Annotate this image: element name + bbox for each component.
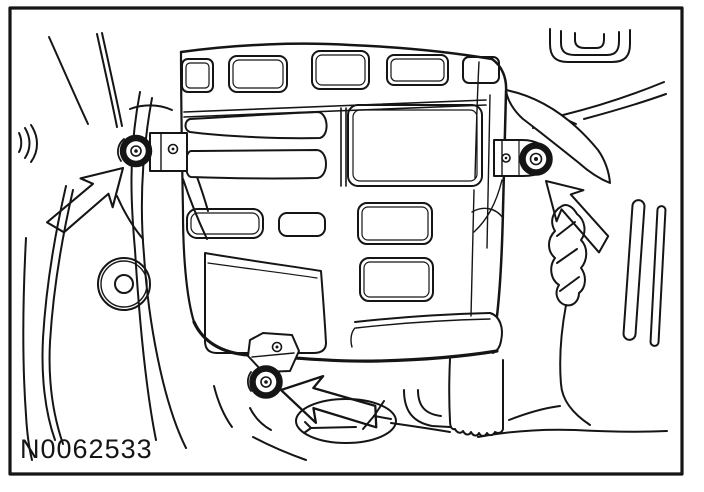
right-mounting-tab	[494, 140, 550, 176]
bracket-bottom-rib	[351, 313, 502, 353]
braided-strap	[509, 205, 590, 425]
wiring-boot	[449, 359, 503, 436]
left-mounting-tab	[118, 133, 187, 171]
right-mounting-bolt	[523, 146, 550, 173]
figure-label: N0062533	[20, 434, 153, 464]
panel-grommet	[98, 258, 150, 310]
bracket-side-openings	[358, 203, 433, 301]
callout-arrows	[41, 152, 622, 436]
bracket-large-opening	[348, 105, 482, 186]
technical-illustration: N0062533	[0, 0, 704, 492]
bracket-finger-slots	[186, 108, 347, 186]
left-mounting-bolt	[123, 138, 149, 164]
bracket-small-slots	[187, 209, 325, 238]
figure-canvas: N0062533	[0, 0, 704, 492]
panel-recess-top-right	[550, 29, 630, 62]
bottom-mounting-bolt	[253, 369, 280, 396]
mounting-bracket	[181, 44, 506, 361]
floor-oval-recess	[296, 399, 396, 443]
bracket-vent-slots	[182, 51, 499, 92]
trim-rods	[623, 200, 666, 346]
